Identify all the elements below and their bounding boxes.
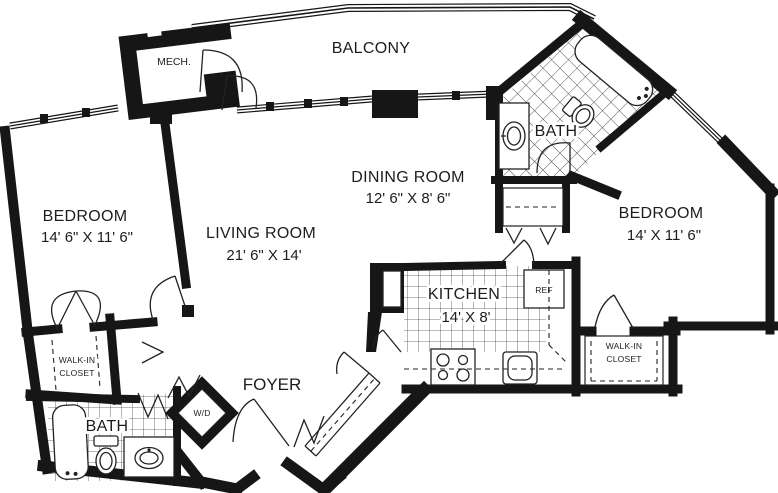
pantry-cabinet: [383, 271, 401, 307]
stove: [431, 349, 475, 385]
room-label-bedroom2: BEDROOM: [619, 205, 704, 222]
room-dims-living: 21' 6" X 14': [226, 247, 301, 264]
bathtub: [52, 404, 89, 480]
dining-hall-closet: [503, 188, 563, 244]
room-label-balcony: BALCONY: [332, 40, 411, 57]
closet-bifold-door: [506, 228, 522, 243]
room-label-mech: MECH.: [157, 56, 191, 68]
bedroom1-door: [150, 276, 186, 320]
room-dims-kitchen: 14' X 8': [441, 309, 490, 326]
sink-vanity: [124, 437, 174, 477]
label-wic-right-1: WALK-IN: [606, 341, 643, 351]
walk-in-closet-right-door: [595, 295, 633, 328]
hall-bifold-door: [142, 342, 163, 363]
room-dims-bedroom1: 14' 6" X 11' 6": [41, 229, 133, 246]
room-label-kitchen: KITCHEN: [428, 286, 500, 303]
label-wic-left-2: CLOSET: [59, 368, 94, 378]
label-wic-left-1: WALK-IN: [59, 355, 96, 365]
kitchen-sink: [503, 352, 537, 384]
label-wic-right-2: CLOSET: [606, 354, 641, 364]
kitchen-dining-door: [500, 240, 534, 264]
room-label-bath-top: BATH: [535, 123, 578, 140]
label-washer-dryer: W/D: [193, 408, 210, 418]
room-label-living: LIVING ROOM: [206, 225, 316, 242]
toilet: [94, 436, 118, 474]
closet-bifold-door: [540, 228, 556, 244]
room-label-bedroom1: BEDROOM: [43, 208, 128, 225]
room-label-dining: DINING ROOM: [351, 169, 465, 186]
room-dims-bedroom2: 14' X 11' 6": [627, 227, 701, 244]
floor-plan: BALCONY MECH. BEDROOM 14' 6" X 11' 6" LI…: [0, 0, 778, 493]
room-label-foyer: FOYER: [243, 375, 302, 394]
closet-door: [344, 352, 369, 373]
bedroom1-window: [10, 108, 118, 126]
sink: [503, 122, 525, 150]
balcony-railing: [192, 7, 594, 28]
floor-plan-page: BALCONY MECH. BEDROOM 14' 6" X 11' 6" LI…: [0, 0, 778, 493]
label-refrigerator: REF: [535, 285, 553, 295]
room-dims-dining: 12' 6" X 8' 6": [366, 190, 451, 207]
bedroom2-window: [668, 90, 726, 146]
room-label-bath-bottom: BATH: [86, 418, 129, 435]
balcony-wall-pier: [372, 90, 418, 118]
